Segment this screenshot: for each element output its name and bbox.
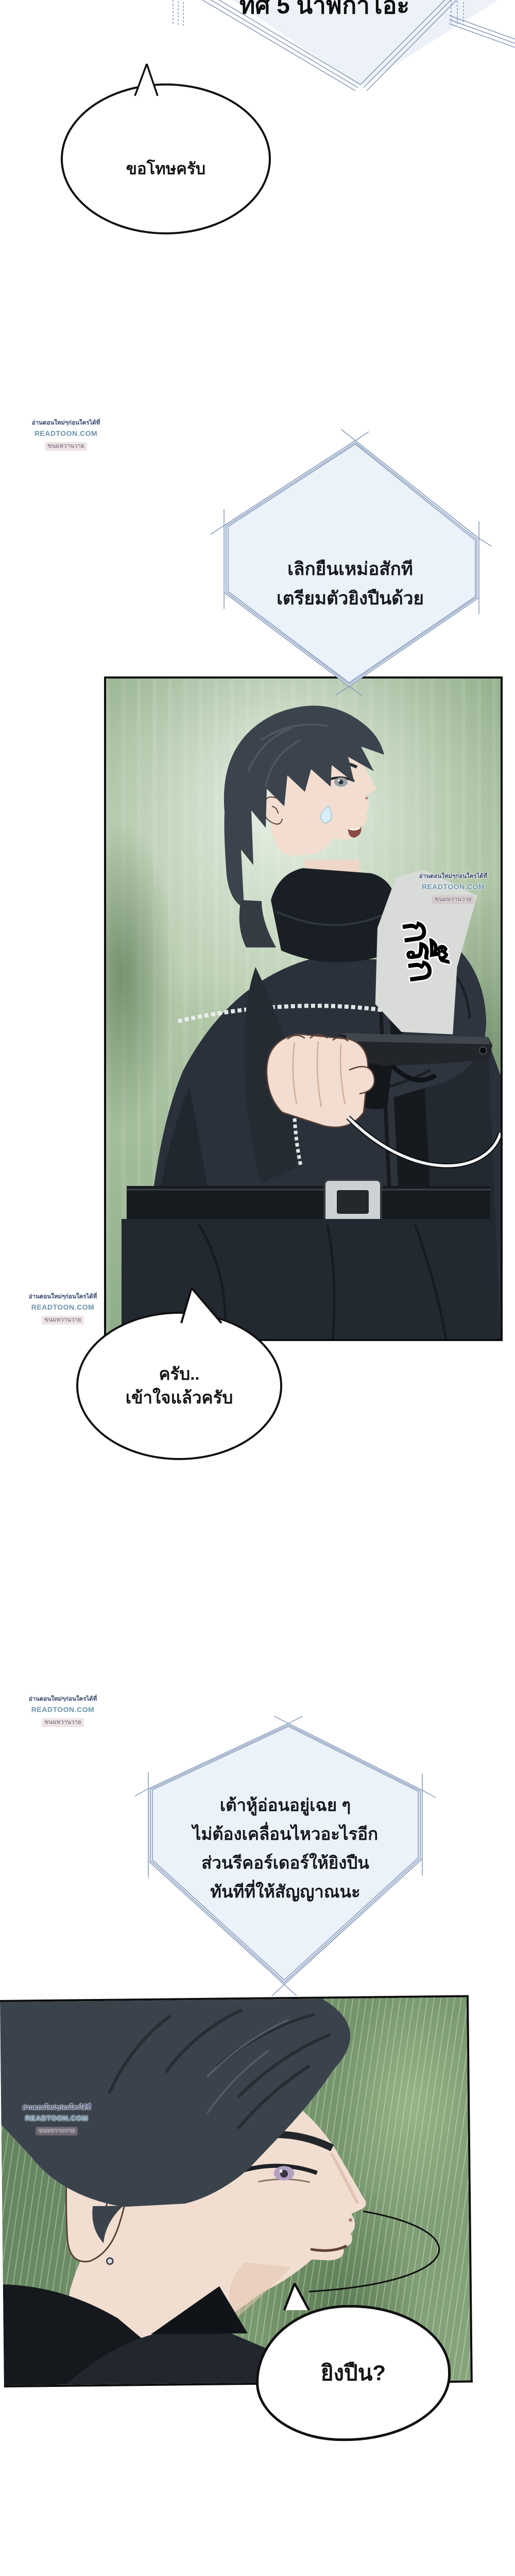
narration-hexagon-1: เลิกยืนเหม่อสักที เตรียมตัวยิงปืนด้วย [216, 554, 484, 613]
watermark-line3: ขนมหวานวาย [42, 1316, 83, 1325]
panel-standing-gunman: กรี๊ก [104, 676, 503, 1341]
watermark: อ่านตอนใหม่ๆก่อนใครได้ที่ READTOON.COM ข… [25, 419, 107, 452]
speech-bubble-understand-line2: เข้าใจแล้วครับ [126, 1386, 233, 1410]
watermark-line3: ขนมหวานวาย [45, 442, 87, 451]
speech-bubble-understand: ครับ.. เข้าใจแล้วครับ [76, 1312, 282, 1460]
speech-bubble-shoot: ยิงปืน? [256, 2305, 451, 2441]
sfx-text: กรี๊ก [382, 887, 458, 1013]
top-hexagon-text: ทิศ 5 นาฬิกาโอ๊ะ [154, 0, 494, 24]
watermark-line2: READTOON.COM [22, 1704, 104, 1716]
speech-bubble-sorry-text: ขอโทษครับ [126, 156, 205, 181]
webtoon-page: { "top_bubble": { "text": "ทิศ 5 นาฬิกาโ… [0, 0, 515, 2576]
speech-bubble-understand-line1: ครับ.. [159, 1362, 199, 1386]
narration-line: ทันทีที่ให้สัญญาณนะ [150, 1877, 420, 1906]
narration-line: ส่วนรีคอร์เดอร์ให้ยิงปืน [150, 1849, 420, 1877]
watermark-line1: อ่านตอนใหม่ๆก่อนใครได้ที่ [25, 419, 107, 428]
narration-hexagon-2: เต้าหู้อ่อนอยู่เฉย ๆ ไม่ต้องเคลื่อนไหวอะ… [150, 1791, 420, 1906]
watermark-line1: อ่านตอนใหม่ๆก่อนใครได้ที่ [22, 1293, 104, 1302]
narration-line: เต้าหู้อ่อนอยู่เฉย ๆ [150, 1791, 420, 1820]
narration-line: ไม่ต้องเคลื่อนไหวอะไรอีก [150, 1820, 420, 1849]
watermark: อ่านตอนใหม่ๆก่อนใครได้ที่ READTOON.COM ข… [22, 1293, 104, 1326]
watermark-line1: อ่านตอนใหม่ๆก่อนใครได้ที่ [22, 1695, 104, 1704]
watermark: อ่านตอนใหม่ๆก่อนใครได้ที่ READTOON.COM ข… [22, 1695, 104, 1728]
watermark-line3: ขนมหวานวาย [42, 1718, 83, 1727]
speech-bubble-shoot-text: ยิงปืน? [321, 2356, 386, 2390]
speech-bubble-sorry: ขอโทษครับ [61, 83, 271, 234]
watermark-line2: READTOON.COM [22, 1302, 104, 1313]
watermark-line2: READTOON.COM [25, 428, 107, 439]
narration-line: เตรียมตัวยิงปืนด้วย [216, 584, 484, 613]
narration-line: เลิกยืนเหม่อสักที [216, 554, 484, 584]
